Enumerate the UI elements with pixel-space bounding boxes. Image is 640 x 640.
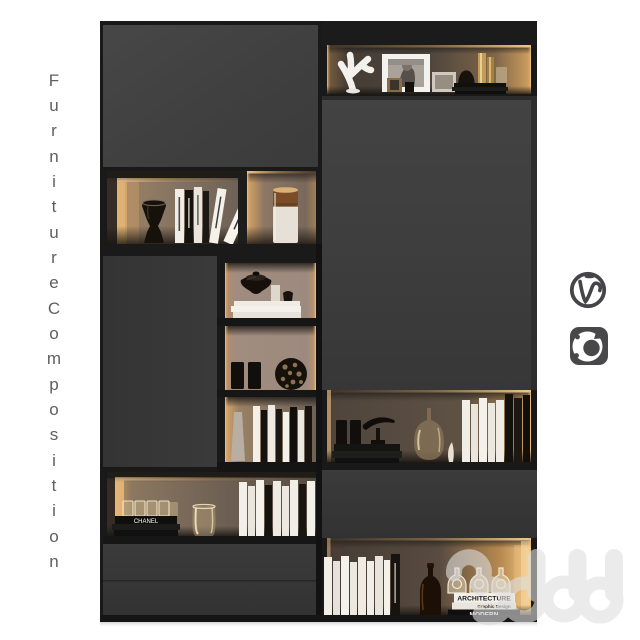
svg-text:r: r (51, 121, 57, 140)
svg-text:t: t (52, 476, 57, 495)
svg-text:i: i (52, 451, 56, 470)
svg-text:p: p (49, 375, 58, 394)
svg-text:u: u (49, 223, 58, 242)
svg-text:m: m (47, 349, 61, 368)
svg-text:s: s (50, 425, 59, 444)
svg-text:o: o (49, 324, 58, 343)
svg-text:e: e (49, 273, 58, 292)
svg-text:n: n (49, 552, 58, 571)
svg-text:C: C (48, 299, 60, 318)
svg-text:o: o (49, 527, 58, 546)
svg-text:t: t (52, 197, 57, 216)
svg-text:r: r (51, 248, 57, 267)
svg-text:F: F (49, 71, 59, 90)
svg-text:o: o (49, 400, 58, 419)
svg-text:i: i (52, 172, 56, 191)
svg-text:i: i (52, 501, 56, 520)
svg-text:u: u (49, 96, 58, 115)
svg-text:n: n (49, 147, 58, 166)
